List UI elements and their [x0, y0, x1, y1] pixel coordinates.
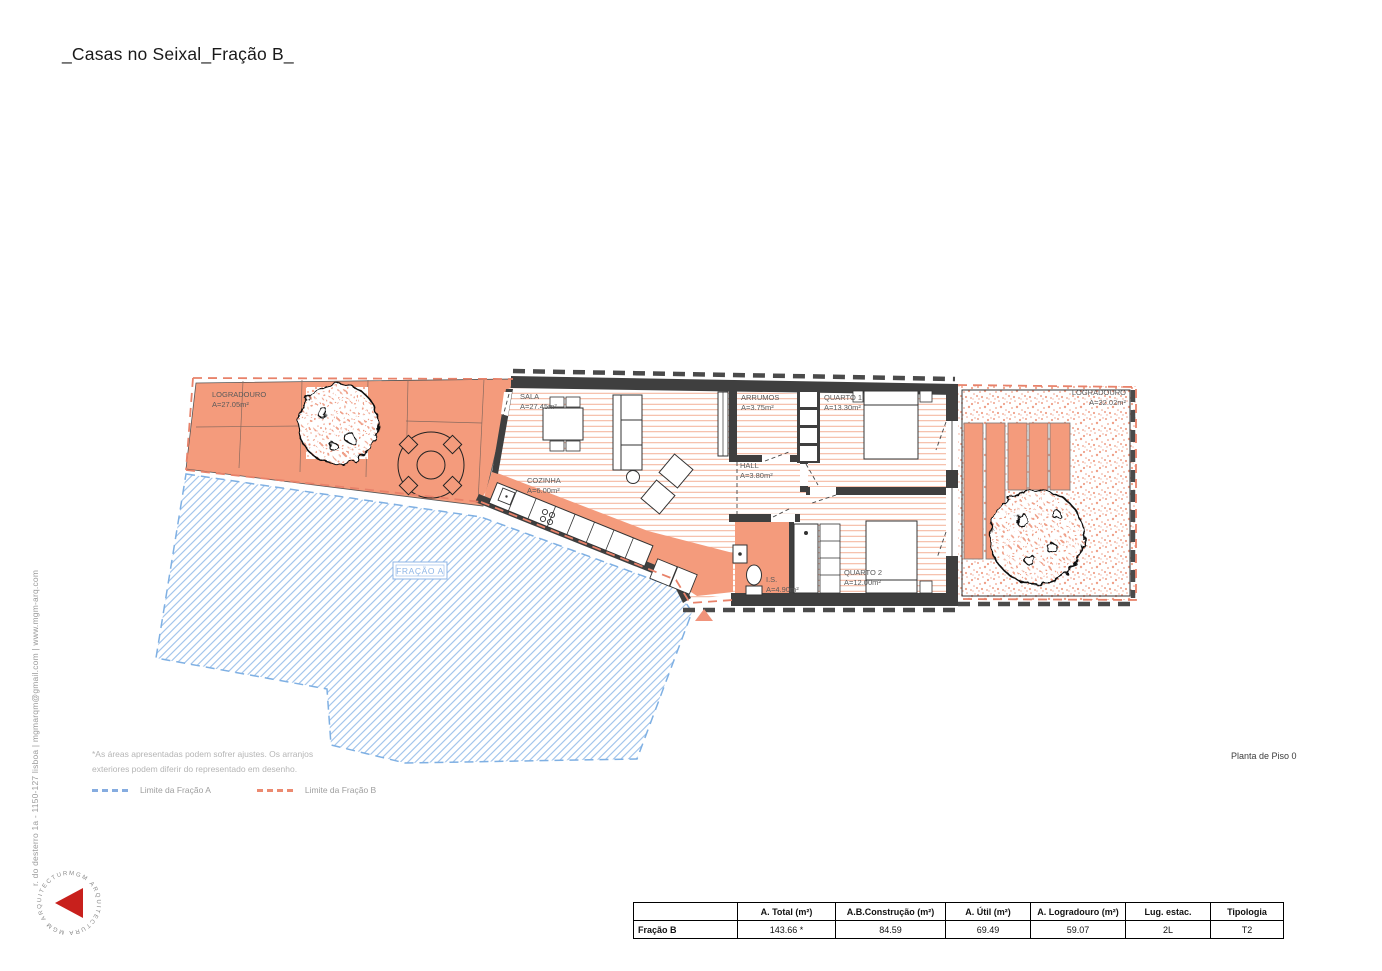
room-label-sala-area: A=27.45m²	[520, 402, 557, 411]
table-cell-util: 69.49	[946, 921, 1031, 939]
room-label-cozinha-area: A=6.00m²	[527, 486, 560, 495]
room-label-logradouro-right-area: A=32.02m²	[1089, 398, 1126, 407]
room-label-hall-area: A=3.80m²	[740, 471, 773, 480]
table-header: A.B.Construção (m²)	[836, 903, 946, 921]
table-cell-fracao: Fração B	[634, 921, 738, 939]
notes-line1: *As áreas apresentadas podem sofrer ajus…	[92, 747, 313, 762]
table-cell-tipologia: T2	[1211, 921, 1284, 939]
table-cell-total: 143.66 *	[738, 921, 836, 939]
table-row: Fração B 143.66 * 84.59 69.49 59.07 2L T…	[634, 921, 1284, 939]
room-label-cozinha-name: COZINHA	[527, 476, 561, 485]
notes-line2: exteriores podem diferir do representado…	[92, 762, 313, 777]
table-header	[634, 903, 738, 921]
legend: Limite da Fração A Limite da Fração B	[92, 785, 376, 795]
drawing-sheet: _Casas no Seixal_Fração B_ r. do desterr…	[0, 0, 1382, 971]
areas-table: A. Total (m²) A.B.Construção (m²) A. Úti…	[633, 902, 1284, 939]
table-cell-construcao: 84.59	[836, 921, 946, 939]
room-label-arrumos-area: A=3.75m²	[741, 403, 774, 412]
room-label-sala-name: SALA	[520, 392, 539, 401]
fracao-a-dash-icon	[92, 789, 132, 792]
sofa-icon	[613, 395, 642, 470]
room-label-arrumos-name: ARRUMOS	[741, 393, 779, 402]
fracao-a-label: FRAÇÃO A	[396, 566, 444, 576]
garden-table-icon	[398, 432, 464, 498]
logradouro-right: LOGRADOURO A=32.02m²	[958, 386, 1136, 600]
room-label-is-area: A=4.90m²	[766, 585, 799, 594]
legend-label-fracao-b: Limite da Fração B	[305, 785, 376, 795]
tree-right-icon	[990, 490, 1084, 584]
legend-label-fracao-a: Limite da Fração A	[140, 785, 211, 795]
room-label-quarto1-area: A=13.30m²	[824, 403, 861, 412]
table-header: A. Total (m²)	[738, 903, 836, 921]
table-header: Lug. estac.	[1126, 903, 1211, 921]
room-label-is-name: I.S.	[766, 575, 777, 584]
tree-left-icon	[298, 384, 378, 464]
table-cell-estac: 2L	[1126, 921, 1211, 939]
table-header: Tipologia	[1211, 903, 1284, 921]
table-header-row: A. Total (m²) A.B.Construção (m²) A. Úti…	[634, 903, 1284, 921]
floor-plan: LOGRADOURO A=27.05m² FRAÇÃO A	[0, 0, 1382, 971]
side-table-icon	[627, 471, 640, 484]
notes: *As áreas apresentadas podem sofrer ajus…	[92, 747, 313, 777]
room-label-logradouro-right-name: LOGRADOURO	[1072, 388, 1126, 397]
closet-quarto2-icon	[820, 524, 840, 593]
toilet-tank-icon	[746, 586, 762, 595]
room-label-logradouro-left-area: A=27.05m²	[212, 400, 249, 409]
table-cell-logradouro: 59.07	[1031, 921, 1126, 939]
bed-quarto1-icon	[864, 391, 918, 459]
dining-table-icon	[543, 408, 583, 440]
room-label-hall-name: HALL	[740, 461, 759, 470]
room-label-quarto2-name: QUARTO 2	[844, 568, 882, 577]
drawing-title: Planta de Piso 0	[1231, 751, 1297, 761]
legend-item-fracao-a: Limite da Fração A	[92, 785, 211, 795]
room-label-quarto1-name: QUARTO 1	[824, 393, 862, 402]
toilet-icon	[747, 565, 762, 585]
legend-item-fracao-b: Limite da Fração B	[257, 785, 376, 795]
room-label-quarto2-area: A=12.00m²	[844, 578, 881, 587]
table-header: A. Útil (m²)	[946, 903, 1031, 921]
fracao-b-dash-icon	[257, 789, 297, 792]
table-header: A. Logradouro (m²)	[1031, 903, 1126, 921]
room-label-logradouro-left-name: LOGRADOURO	[212, 390, 266, 399]
